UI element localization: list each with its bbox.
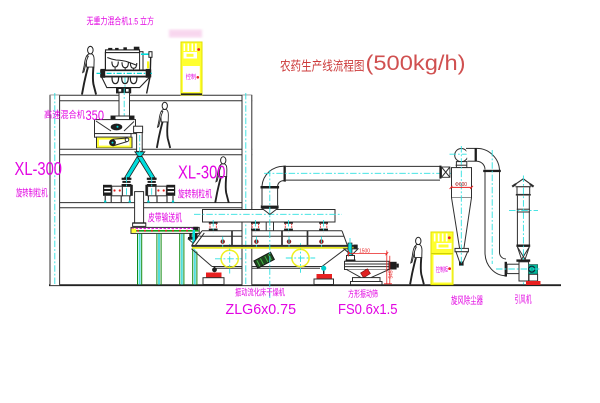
svg-text:高速混合机: 高速混合机: [44, 109, 85, 121]
svg-text:引风机: 引风机: [515, 293, 532, 306]
svg-text:无重力混合机1.5 立方: 无重力混合机1.5 立方: [87, 16, 155, 28]
svg-text:Φ600: Φ600: [455, 182, 467, 188]
svg-text:振动流化床干燥机: 振动流化床干燥机: [235, 287, 285, 298]
svg-text:旋转制粒机: 旋转制粒机: [16, 187, 48, 200]
svg-text:农药生产线流程图: 农药生产线流程图: [280, 59, 365, 74]
svg-text:旋转制粒机: 旋转制粒机: [178, 188, 212, 201]
svg-text:皮带输送机: 皮带输送机: [148, 211, 182, 224]
svg-text:XL-300: XL-300: [15, 159, 63, 179]
svg-text:1500: 1500: [359, 249, 370, 255]
svg-text:350: 350: [86, 107, 105, 123]
svg-text:控制柜: 控制柜: [436, 265, 448, 274]
svg-text:ZLG6x0.75: ZLG6x0.75: [226, 301, 297, 318]
svg-text:方形振动筛: 方形振动筛: [348, 288, 378, 299]
svg-text:545: 545: [389, 270, 395, 278]
svg-text:旋风除尘器: 旋风除尘器: [451, 294, 483, 307]
svg-text:(500kg/h): (500kg/h): [366, 51, 466, 75]
svg-text:控制: 控制: [186, 73, 197, 81]
svg-text:FS0.6x1.5: FS0.6x1.5: [338, 301, 398, 318]
svg-text:XL-300: XL-300: [178, 163, 226, 183]
